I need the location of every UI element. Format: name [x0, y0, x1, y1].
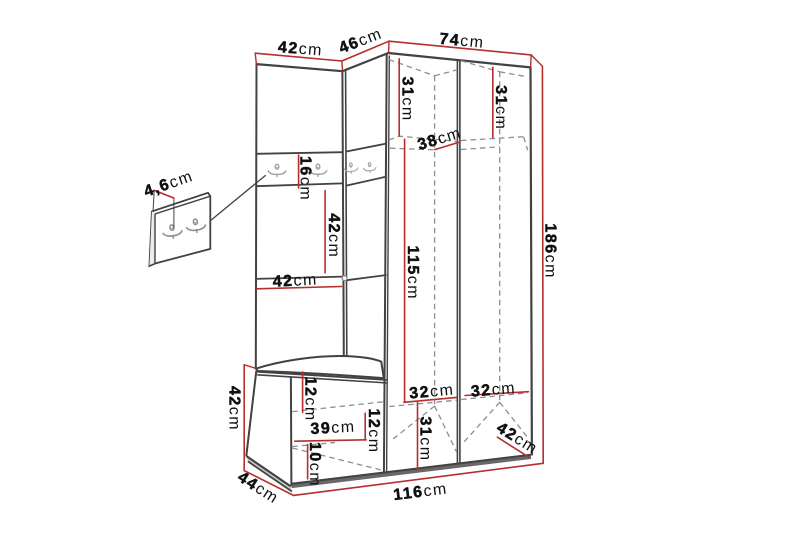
svg-text:42cm: 42cm: [226, 386, 243, 431]
svg-text:42cm: 42cm: [277, 39, 323, 59]
svg-text:31cm: 31cm: [417, 416, 434, 461]
svg-text:31cm: 31cm: [492, 85, 509, 130]
svg-text:16cm: 16cm: [297, 156, 314, 201]
svg-text:42cm: 42cm: [325, 213, 342, 258]
svg-text:186cm: 186cm: [541, 223, 558, 279]
svg-text:12cm: 12cm: [365, 408, 382, 453]
svg-text:115cm: 115cm: [404, 245, 421, 300]
svg-text:31cm: 31cm: [399, 77, 416, 122]
svg-text:39cm: 39cm: [310, 419, 356, 438]
svg-text:12cm: 12cm: [302, 377, 319, 422]
svg-text:10cm: 10cm: [306, 442, 323, 487]
svg-text:42cm: 42cm: [272, 271, 318, 290]
